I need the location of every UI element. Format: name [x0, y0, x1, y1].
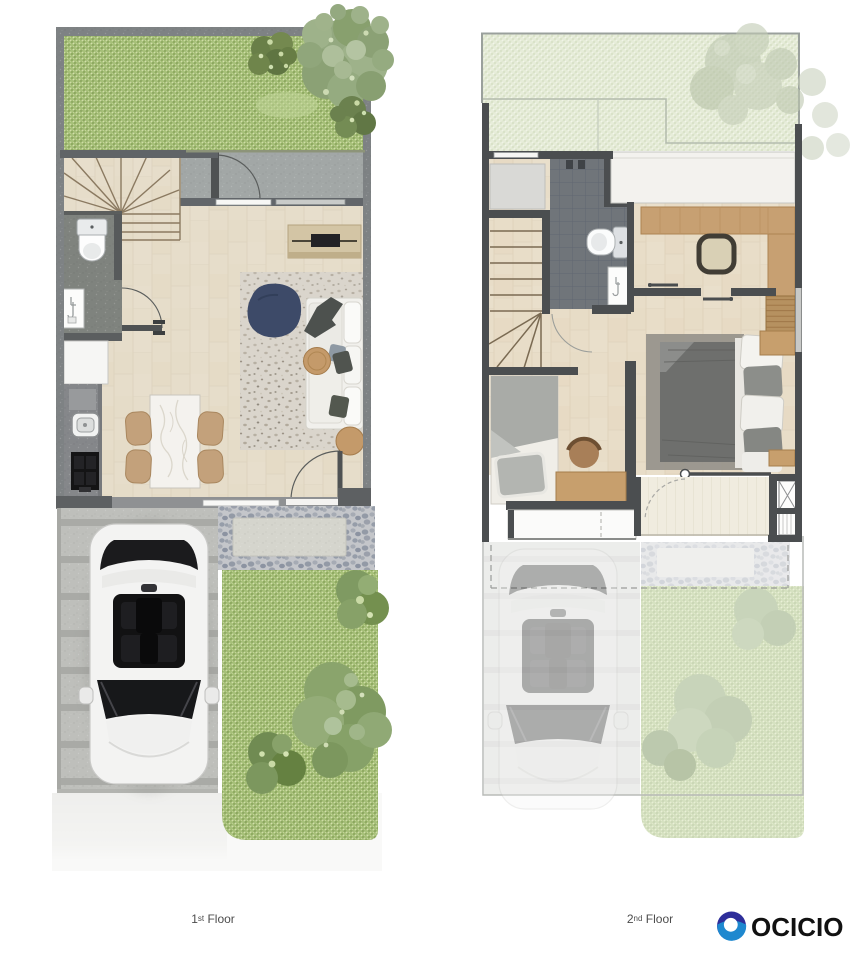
svg-text:OCICIO: OCICIO: [751, 912, 843, 942]
svg-text:1st Floor: 1st Floor: [191, 912, 235, 926]
